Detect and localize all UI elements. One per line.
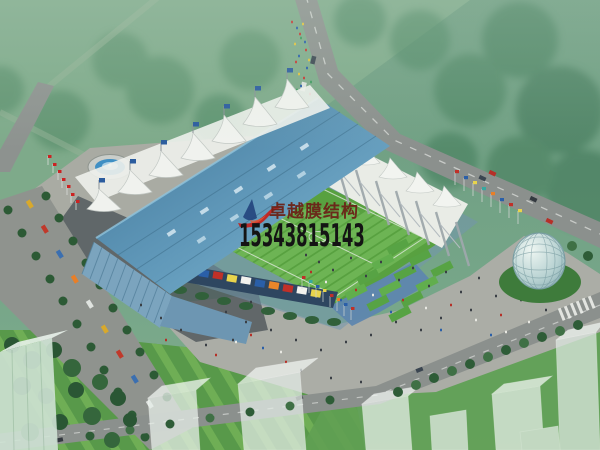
- rendering-canvas: 卓越膜结构 15343815143: [0, 0, 600, 450]
- watermark-phone-number: 15343815143: [239, 221, 365, 252]
- haze-overlay: [0, 0, 600, 150]
